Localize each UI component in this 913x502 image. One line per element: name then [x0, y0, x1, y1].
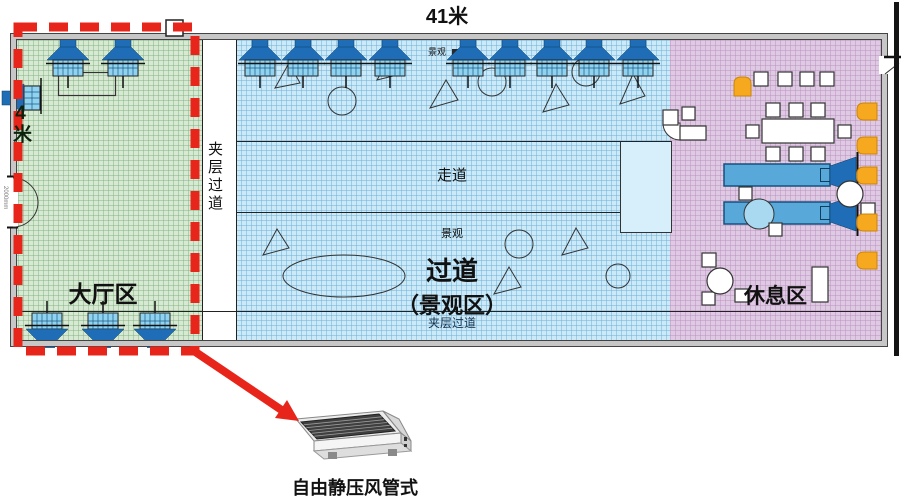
ac-unit-photo: [296, 411, 411, 459]
lobby-zone-label: 大厅区: [38, 275, 168, 309]
floor-plan-page: 41米 4米 2000mm 夹层过道 景观 走道 景观 过道 （景观区） 大厅区…: [0, 0, 913, 502]
scenic-mid-label: 景观: [402, 225, 502, 241]
rest-zone-label: 休息区: [744, 280, 807, 310]
left-dimension-label: 4米: [7, 103, 34, 143]
mezzanine-bottom-label: 夹层过道: [402, 314, 502, 331]
mezzanine-left-label: 夹层过道: [204, 141, 225, 213]
ac-unit-caption: 自由静压风管式: [270, 474, 440, 500]
highlight-overlay: [0, 0, 913, 502]
corridor-zone-label-line1: 过道: [352, 257, 552, 286]
door-dimension-label: 2000mm: [2, 186, 8, 209]
scenic-top-label: 景观: [428, 45, 446, 58]
red-arrow: [194, 351, 283, 411]
walkway-label: 走道: [402, 164, 502, 185]
top-dimension-label: 41米: [397, 0, 497, 29]
